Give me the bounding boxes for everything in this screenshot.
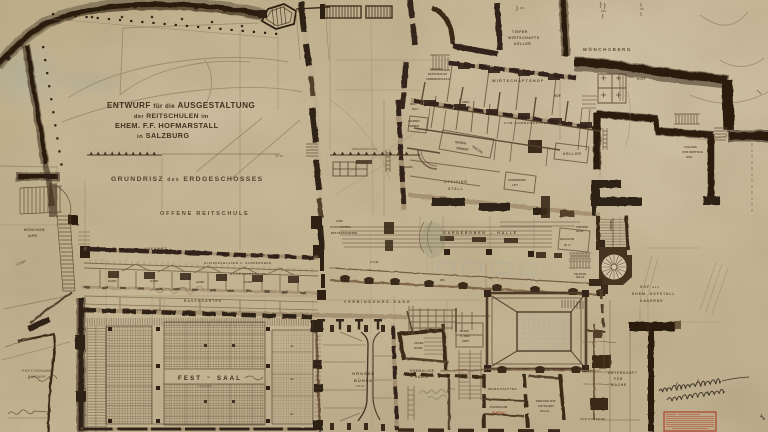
svg-text:GARD: GARD xyxy=(108,279,116,283)
svg-text:ZUR WIRTSCH: ZUR WIRTSCH xyxy=(682,150,703,154)
svg-text:OFFENE REITSCHULE: OFFENE REITSCHULE xyxy=(160,211,250,217)
svg-text:FEST ~ SAAL: FEST ~ SAAL xyxy=(178,375,242,382)
svg-text:GARDEROBEN — HALLE: GARDEROBEN — HALLE xyxy=(443,231,518,235)
svg-text:TREPPEN: TREPPEN xyxy=(576,225,588,229)
svg-text:GARDEROBE: GARDEROBE xyxy=(508,178,526,182)
svg-text:KELLER: KELLER xyxy=(514,42,531,46)
svg-text:ZUGANG: ZUGANG xyxy=(684,145,698,149)
svg-text:ZUM: ZUM xyxy=(370,260,379,264)
svg-text:STALL: STALL xyxy=(448,187,464,191)
svg-text:WAGEN: WAGEN xyxy=(402,165,413,169)
svg-text:REIT: REIT xyxy=(410,102,417,106)
svg-text:REITSTEIG IM: REITSTEIG IM xyxy=(428,72,447,76)
svg-text:4b: 4b xyxy=(290,377,294,381)
svg-text:RAUM: RAUM xyxy=(414,346,423,350)
svg-text:ARZT: ARZT xyxy=(462,339,470,343)
svg-text:1200 Sitze: 1200 Sitze xyxy=(198,384,213,388)
svg-text:RAUM: RAUM xyxy=(462,105,471,109)
svg-text:ZELLE: ZELLE xyxy=(576,275,584,279)
svg-text:ZUGANG: ZUGANG xyxy=(430,67,442,71)
svg-text:WIRTSCHAFTS: WIRTSCHAFTS xyxy=(508,36,540,40)
svg-text:ANKL: ANKL xyxy=(462,100,470,104)
svg-text:GARD: GARD xyxy=(196,280,204,284)
svg-text:GRUNDRISZ des ERDGESCHOSSES: GRUNDRISZ des ERDGESCHOSSES xyxy=(111,176,264,183)
svg-text:ZUR KASERNE: ZUR KASERNE xyxy=(580,417,606,421)
svg-text:der REITSCHULEN im: der REITSCHULEN im xyxy=(134,113,209,120)
svg-text:TIEFER: TIEFER xyxy=(512,30,528,34)
svg-text:KUTSCHEN: KUTSCHEN xyxy=(538,404,554,408)
svg-text:LEHRER: LEHRER xyxy=(408,119,420,123)
svg-text:PACKRAUM: PACKRAUM xyxy=(490,405,508,409)
svg-text:MÖNCHSBERG: MÖNCHSBERG xyxy=(583,46,632,52)
svg-text:HOF: HOF xyxy=(686,155,693,159)
svg-text:ENTWURF für die AUSGESTALTUNG: ENTWURF für die AUSGESTALTUNG xyxy=(107,101,255,110)
svg-text:in SALZBURG: in SALZBURG xyxy=(137,131,190,140)
svg-text:PHOTOGRAMM: PHOTOGRAMM xyxy=(22,369,52,373)
svg-text:AUFG: AUFG xyxy=(28,234,38,238)
svg-text:WC: WC xyxy=(440,278,446,282)
svg-text:KLEIDERABLAGEN U. GARDEROBEN: KLEIDERABLAGEN U. GARDEROBEN xyxy=(204,261,271,265)
svg-text:BUREAU: BUREAU xyxy=(492,411,506,415)
svg-text:GARD: GARD xyxy=(244,280,252,284)
svg-text:HOF: HOF xyxy=(554,94,561,98)
svg-text:KELLER: KELLER xyxy=(563,152,582,156)
svg-text:EINGANG ZUR: EINGANG ZUR xyxy=(536,399,556,403)
svg-text:ZUM SOMMERKELLER: ZUM SOMMERKELLER xyxy=(504,121,550,125)
svg-text:HALLE: HALLE xyxy=(540,409,549,413)
svg-text:SOMMERSCHULE: SOMMERSCHULE xyxy=(426,77,450,81)
svg-text:2a: 2a xyxy=(290,412,294,416)
svg-text:RAU: RAU xyxy=(412,107,419,111)
svg-text:TREPPE: TREPPE xyxy=(609,220,613,231)
svg-text:MÖNCHSB: MÖNCHSB xyxy=(24,227,45,232)
svg-text:FÜR: FÜR xyxy=(614,376,623,381)
svg-text:MAGAZIN: MAGAZIN xyxy=(560,237,574,241)
svg-text:OFFICIER: OFFICIER xyxy=(444,180,468,184)
svg-text:HAUS: HAUS xyxy=(576,229,584,233)
svg-text:EHEMALIGE: EHEMALIGE xyxy=(410,369,434,373)
svg-text:MUSIK: MUSIK xyxy=(460,329,469,333)
svg-text:ZIMMER: ZIMMER xyxy=(408,124,419,128)
svg-text:EHEM. F.F. HOFMARSTALL: EHEM. F.F. HOFMARSTALL xyxy=(115,121,219,130)
svg-text:UNTERKUNFT: UNTERKUNFT xyxy=(608,371,638,375)
svg-text:WERKSTATTEN: WERKSTATTEN xyxy=(488,387,517,391)
svg-text:VERBINDUNGS-GANG: VERBINDUNGS-GANG xyxy=(344,300,411,304)
svg-text:GARD: GARD xyxy=(150,279,158,283)
svg-text:AUSGANG: AUSGANG xyxy=(246,253,266,257)
svg-text:WACHE: WACHE xyxy=(611,383,627,387)
svg-text:EHEM. HOFSTALL: EHEM. HOFSTALL xyxy=(632,292,676,296)
svg-text:HOF: HOF xyxy=(637,77,647,81)
svg-text:ZUM: ZUM xyxy=(336,219,343,223)
svg-text:U. AND.: U. AND. xyxy=(460,334,471,338)
svg-text:ANFAHRT: ANFAHRT xyxy=(144,247,167,251)
svg-text:TAGES: TAGES xyxy=(414,341,424,345)
svg-text:150 qm: 150 qm xyxy=(356,384,365,388)
svg-text:BÜHNE: BÜHNE xyxy=(354,378,373,383)
svg-text:4a: 4a xyxy=(290,344,294,348)
svg-text:W. C.: W. C. xyxy=(564,243,571,247)
svg-text:LIFT: LIFT xyxy=(512,183,518,187)
svg-text:WIRTSCHAFTSHOF: WIRTSCHAFTSHOF xyxy=(492,79,544,83)
svg-text:AUSKLEIDERAUM: AUSKLEIDERAUM xyxy=(230,272,267,276)
svg-text:HALLE: HALLE xyxy=(415,375,429,379)
svg-text:RAUCHGARTEN: RAUCHGARTEN xyxy=(184,299,222,303)
svg-text:BACKOFEN U. BUF.: BACKOFEN U. BUF. xyxy=(122,308,163,312)
svg-text:10 m: 10 m xyxy=(275,154,283,158)
svg-text:GROSSE: GROSSE xyxy=(352,371,375,376)
svg-text:ERWEITERUNG 10m: ERWEITERUNG 10m xyxy=(352,147,377,151)
svg-text:KASERNE: KASERNE xyxy=(640,299,664,303)
svg-text:AUSFAHRTEN: AUSFAHRTEN xyxy=(330,225,351,229)
svg-text:MIT FESTGARTEN: MIT FESTGARTEN xyxy=(331,231,357,235)
